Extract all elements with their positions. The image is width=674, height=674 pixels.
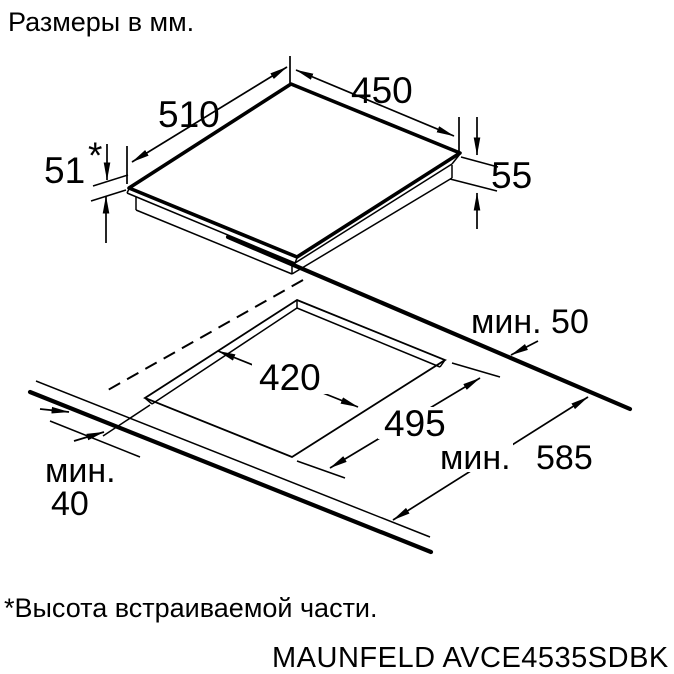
rear-clearance-arrow [511,341,538,355]
installation-diagram-page: Размеры в мм. 510 450 51 * 55 420 495 ми… [0,0,674,674]
cutout-width-label: 420 [259,357,321,398]
counter-depth-label-value: 585 [536,439,593,477]
counter-depth-label-prefix: мин. [440,439,511,477]
cutout-depth-label: 495 [384,403,446,444]
rear-clearance-label: мин. 50 [471,303,589,341]
cutout-drawing [30,237,630,552]
built-in-height-label: 51 [44,150,85,191]
installation-diagram: Размеры в мм. 510 450 51 * 55 420 495 ми… [0,0,674,674]
model-name: MAUNFELD AVCE4535SDBK [272,642,669,674]
front-clearance-label-line2: 40 [51,485,89,523]
hob-depth-label: 510 [158,94,220,135]
units-note: Размеры в мм. [8,7,194,37]
hob-width-label: 450 [351,70,413,111]
footnote: *Высота встраиваемой части. [4,593,378,623]
built-in-height-asterisk: * [88,135,102,176]
total-height-label: 55 [491,155,532,196]
hob-drawing [91,56,498,274]
